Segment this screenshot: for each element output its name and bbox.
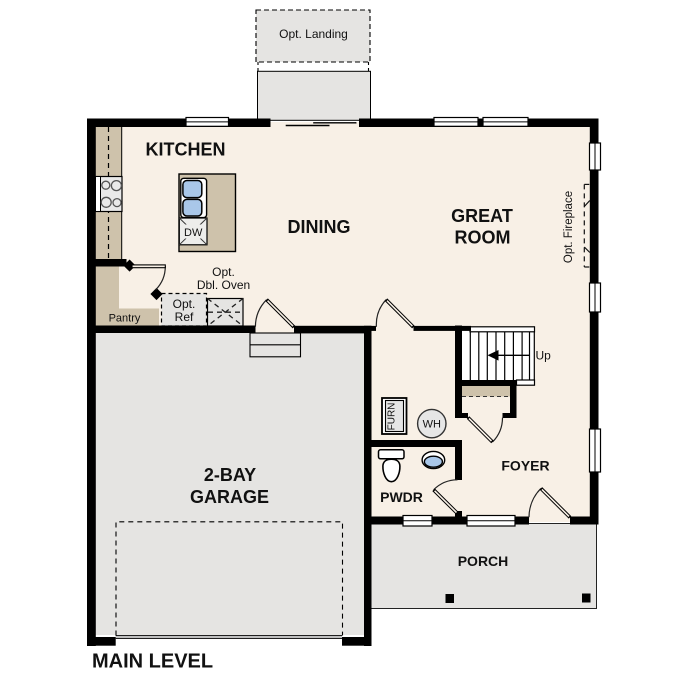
svg-text:Up: Up [536, 349, 552, 363]
svg-text:2-BAY: 2-BAY [204, 465, 256, 485]
svg-text:FOYER: FOYER [501, 458, 549, 474]
svg-text:PORCH: PORCH [458, 553, 509, 569]
svg-text:MAIN LEVEL: MAIN LEVEL [92, 651, 213, 673]
svg-text:Dbl. Oven: Dbl. Oven [197, 278, 250, 292]
svg-text:FURN: FURN [387, 403, 398, 431]
svg-text:PWDR: PWDR [380, 489, 423, 505]
svg-text:Opt.: Opt. [173, 297, 196, 311]
svg-text:GARAGE: GARAGE [190, 487, 269, 507]
svg-text:Pantry: Pantry [109, 313, 141, 325]
svg-text:DW: DW [184, 227, 203, 239]
svg-text:WH: WH [423, 419, 441, 431]
svg-text:Opt.: Opt. [212, 265, 235, 279]
svg-text:KITCHEN: KITCHEN [146, 140, 226, 160]
svg-text:Opt. Fireplace: Opt. Fireplace [563, 191, 575, 263]
svg-text:ROOM: ROOM [455, 228, 511, 248]
svg-text:DINING: DINING [288, 217, 351, 237]
svg-text:Ref: Ref [175, 310, 194, 324]
svg-text:GREAT: GREAT [451, 206, 513, 226]
svg-text:Opt. Landing: Opt. Landing [279, 27, 348, 41]
